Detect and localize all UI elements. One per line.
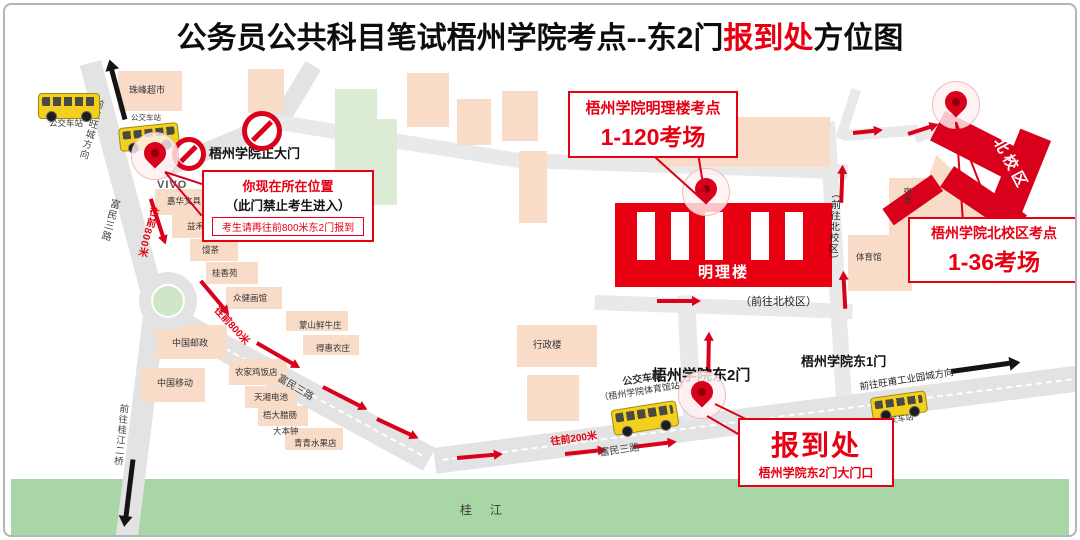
beef-restaurant-label: 蒙山鲜牛庄 — [299, 321, 342, 331]
route-arrow-icon — [200, 280, 226, 310]
building-notch — [751, 212, 769, 260]
bus-wheel — [908, 405, 920, 417]
road-label-to-north-campus-h: （前往北校区） — [740, 296, 817, 309]
map-frame: 公务员公共科目笔试梧州学院考点--东2门报到处方位图 桂江 — [3, 3, 1077, 537]
mingli-callout-rooms: 1-120考场 — [578, 118, 728, 152]
bus-wheel — [81, 111, 92, 122]
tea-shop-label: 馒茶 — [202, 246, 219, 256]
building — [407, 73, 449, 127]
bus-stop-label: 公交车站 — [131, 114, 161, 123]
bus-icon — [38, 93, 100, 119]
title-part1: 公务员公共科目笔试梧州学院考点--东2门 — [177, 22, 724, 55]
you-are-here-line3: 考生请再往前800米东2门报到 — [212, 217, 364, 236]
art-gallery-label: 众健画馆 — [233, 294, 267, 304]
dorm-label: 宿舍 — [903, 187, 912, 205]
page-title: 公务员公共科目笔试梧州学院考点--东2门报到处方位图 — [5, 13, 1075, 57]
building-notch — [671, 212, 689, 260]
building-notch — [637, 212, 655, 260]
supermarket-label: 珠峰超市 — [129, 85, 165, 95]
mingli-building: 明理楼 — [615, 203, 832, 287]
battery-shop-label: 天湘电池 — [254, 393, 288, 403]
checkin-callout: 报到处 梧州学院东2门大门口 — [738, 418, 894, 487]
bus-wheel — [46, 111, 57, 122]
stationery-label: 嘉华文具 — [167, 197, 201, 207]
you-are-here-line2: （此门禁止考生进入） — [212, 195, 364, 214]
building — [519, 151, 547, 223]
building — [457, 99, 491, 145]
mingli-callout: 梧州学院明理楼考点 1-120考场 — [568, 91, 738, 158]
title-highlight: 报到处 — [723, 22, 813, 55]
you-are-here-line1: 你现在所在位置 — [212, 176, 364, 195]
map-screenshot: 公务员公共科目笔试梧州学院考点--东2门报到处方位图 桂江 — [0, 0, 1080, 540]
checkin-callout-subtitle: 梧州学院东2门大门口 — [748, 464, 884, 481]
fruit-shop-label: 青青水果店 — [294, 439, 337, 449]
you-are-here-callout: 你现在所在位置 （此门禁止考生进入） 考生请再往前800米东2门报到 — [202, 170, 374, 242]
north-campus-callout: 梧州学院北校区考点 1-36考场 — [908, 217, 1077, 283]
china-post-label: 中国邮政 — [172, 338, 208, 348]
mingli-building-label: 明理楼 — [698, 261, 749, 282]
building-gym — [848, 235, 912, 291]
direction-arrow-icon — [951, 361, 1011, 374]
route-arrow-icon — [842, 279, 847, 309]
sausage-shop-label: 梧大腊肠 — [263, 411, 297, 421]
guixiangyuan-label: 桂香苑 — [212, 269, 238, 279]
gym-bus-station-label: 公交车站 （梧州学院体育馆站） — [597, 367, 689, 403]
building — [248, 69, 284, 113]
dabenzhong-label: 大本钟 — [273, 427, 299, 437]
china-mobile-label: 中国移动 — [157, 378, 193, 388]
chicken-restaurant-label: 农家鸡饭店 — [235, 368, 278, 378]
river-label: 桂江 — [460, 504, 520, 518]
building — [527, 375, 579, 421]
admin-building-label: 行政楼 — [533, 341, 562, 352]
title-part2: 方位图 — [813, 22, 903, 55]
roundabout-green-center — [153, 286, 183, 316]
river-guijiang — [11, 479, 1069, 536]
farm-restaurant-label: 得惠农庄 — [316, 344, 350, 354]
checkin-callout-title: 报到处 — [748, 424, 884, 464]
bus-windows — [42, 97, 96, 106]
building — [502, 91, 538, 141]
no-entry-icon — [242, 111, 282, 151]
roundabout — [139, 272, 197, 330]
north-callout-rooms: 1-36考场 — [918, 243, 1070, 277]
building-notch — [705, 212, 723, 260]
gym-label: 体育馆 — [856, 253, 882, 263]
building-notch — [785, 212, 803, 260]
east-gate-1-label: 梧州学院东1门 — [801, 355, 886, 370]
route-arrow-icon — [657, 299, 693, 303]
north-callout-title: 梧州学院北校区考点 — [918, 223, 1070, 243]
road-label-fumin-upper: 富民三路 — [98, 197, 120, 242]
mingli-callout-title: 梧州学院明理楼考点 — [578, 97, 728, 118]
